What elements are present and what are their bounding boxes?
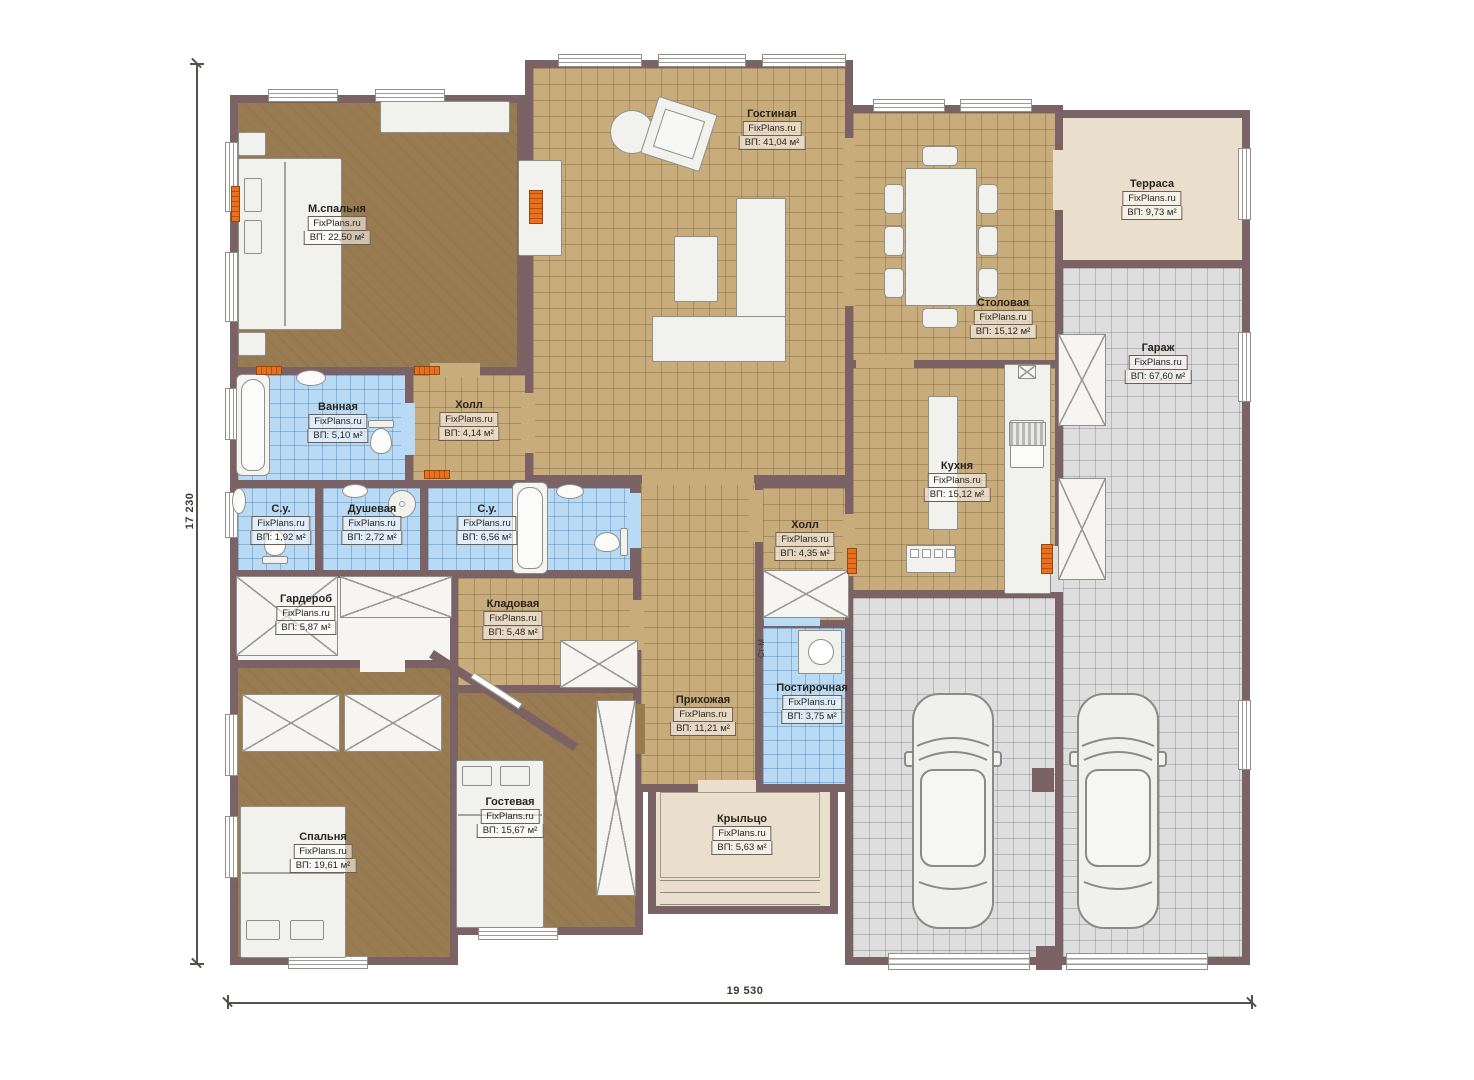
blanket-line <box>284 162 286 326</box>
dimension-width-label: 19 530 <box>700 985 790 997</box>
window <box>1238 332 1251 402</box>
room-name: Гостиная <box>747 108 797 120</box>
window <box>873 99 945 112</box>
room-label: СпальняFixPlans.ruВП: 19,61 м² <box>290 831 357 873</box>
room-label: СтоловаяFixPlans.ruВП: 15,12 м² <box>970 297 1037 339</box>
door-opening <box>401 403 415 455</box>
room-label: КладоваяFixPlans.ruВП: 5,48 м² <box>482 598 543 640</box>
burner <box>910 549 919 558</box>
room-area: ВП: 2,72 м² <box>341 531 402 545</box>
room-watermark: FixPlans.ru <box>293 844 353 859</box>
room-area: ВП: 5,63 м² <box>711 841 772 855</box>
sink <box>296 370 326 386</box>
room-name: Душевая <box>348 503 397 515</box>
room-label: ТеррасаFixPlans.ruВП: 9,73 м² <box>1121 178 1182 220</box>
room-area: ВП: 3,75 м² <box>781 710 842 724</box>
sofa <box>652 316 786 362</box>
room-name: Гараж <box>1142 342 1175 354</box>
dining-table <box>905 168 977 306</box>
room-area: ВП: 15,12 м² <box>970 325 1037 339</box>
chair <box>978 226 998 256</box>
washing-machine-label: Ст-М <box>757 639 766 658</box>
window <box>558 54 642 67</box>
room-name: Крыльцо <box>717 813 767 825</box>
room-name: С.у. <box>477 503 496 515</box>
room-name: Гардероб <box>280 593 332 605</box>
toilet <box>370 428 392 454</box>
pillow <box>500 766 530 786</box>
room-name: Постирочная <box>776 682 847 694</box>
room-label: ПостирочнаяFixPlans.ruВП: 3,75 м² <box>776 682 847 724</box>
room-label: ГостинаяFixPlans.ruВП: 41,04 м² <box>739 108 806 150</box>
room-area: ВП: 22,50 м² <box>304 231 371 245</box>
room-label: ДушеваяFixPlans.ruВП: 2,72 м² <box>341 503 402 545</box>
room-watermark: FixPlans.ru <box>782 695 842 710</box>
room-watermark: FixPlans.ru <box>742 121 802 136</box>
room-name: Ванная <box>318 401 358 413</box>
window <box>225 714 238 776</box>
room-watermark: FixPlans.ru <box>276 606 336 621</box>
room-watermark: FixPlans.ru <box>927 473 987 488</box>
room-label: ПрихожаяFixPlans.ruВП: 11,21 м² <box>670 694 736 736</box>
room-name: Кладовая <box>487 598 540 610</box>
pillar <box>1032 768 1054 792</box>
burner <box>934 549 943 558</box>
coffee-table <box>674 236 718 302</box>
room-area: ВП: 4,14 м² <box>438 427 499 441</box>
sink <box>556 484 584 499</box>
garage-cabinet <box>1058 478 1106 580</box>
toilet-tank <box>620 528 628 556</box>
window <box>1238 148 1251 220</box>
dimension-line-vertical <box>196 64 198 964</box>
armchair-seat <box>653 108 705 159</box>
fireplace-fire-icon <box>529 190 543 224</box>
toilet-tank <box>368 420 394 428</box>
pillar <box>1036 946 1062 970</box>
room-area: ВП: 15,67 м² <box>477 824 544 838</box>
room-name: Гостевая <box>485 796 534 808</box>
room-watermark: FixPlans.ru <box>308 414 368 429</box>
bathtub <box>236 374 270 476</box>
room-watermark: FixPlans.ru <box>457 516 517 531</box>
room-watermark: FixPlans.ru <box>251 516 311 531</box>
pillow <box>246 920 280 940</box>
dimension-height-label: 17 230 <box>184 481 196 541</box>
door-opening <box>642 471 754 485</box>
car-icon <box>1068 686 1168 936</box>
bedroom-closet <box>344 694 442 752</box>
room-area: ВП: 41,04 м² <box>739 136 806 150</box>
room-area: ВП: 1,92 м² <box>250 531 311 545</box>
storage-cabinet <box>560 640 638 688</box>
room-label: ГаражFixPlans.ruВП: 67,60 м² <box>1125 342 1192 384</box>
room-area: ВП: 5,10 м² <box>307 429 368 443</box>
room-watermark: FixPlans.ru <box>307 216 367 231</box>
window <box>225 816 238 878</box>
bedroom-closet <box>242 694 340 752</box>
pillow <box>290 920 324 940</box>
room-label: С.у.FixPlans.ruВП: 6,56 м² <box>456 503 517 545</box>
room-area: ВП: 19,61 м² <box>290 859 357 873</box>
nightstand <box>238 132 266 156</box>
window <box>658 54 746 67</box>
chair <box>922 308 958 328</box>
room-label: ВаннаяFixPlans.ruВП: 5,10 м² <box>307 401 368 443</box>
room-label: ХоллFixPlans.ruВП: 4,35 м² <box>774 519 835 561</box>
radiator-icon <box>1041 544 1053 574</box>
room-label: М.спальняFixPlans.ruВП: 22,50 м² <box>304 203 371 245</box>
room-name: С.у. <box>271 503 290 515</box>
chair <box>884 226 904 256</box>
room-area: ВП: 5,48 м² <box>482 626 543 640</box>
door-opening <box>627 493 641 548</box>
room-watermark: FixPlans.ru <box>673 707 733 722</box>
room-watermark: FixPlans.ru <box>1122 191 1182 206</box>
radiator-icon <box>424 470 450 479</box>
room-watermark: FixPlans.ru <box>342 516 402 531</box>
room-watermark: FixPlans.ru <box>973 310 1033 325</box>
room-watermark: FixPlans.ru <box>483 611 543 626</box>
toilet-tank <box>262 556 288 564</box>
door-opening <box>749 490 763 542</box>
pillow <box>462 766 492 786</box>
room-label: ХоллFixPlans.ruВП: 4,14 м² <box>438 399 499 441</box>
door-opening <box>1053 150 1067 210</box>
room-label: ГардеробFixPlans.ruВП: 5,87 м² <box>275 593 336 635</box>
window <box>225 252 238 322</box>
window <box>960 99 1032 112</box>
porch-step <box>660 880 820 881</box>
room-label: КухняFixPlans.ruВП: 15,12 м² <box>924 460 991 502</box>
room-name: Прихожая <box>676 694 730 706</box>
room-area: ВП: 15,12 м² <box>924 488 991 502</box>
door-opening <box>521 393 535 453</box>
window <box>762 54 846 67</box>
room-watermark: FixPlans.ru <box>775 532 835 547</box>
room-label: ГостеваяFixPlans.ruВП: 15,67 м² <box>477 796 544 838</box>
dishwasher <box>1009 422 1046 446</box>
pillow <box>244 178 262 212</box>
sink <box>342 484 368 498</box>
dresser <box>380 101 510 133</box>
room-name: Кухня <box>941 460 973 472</box>
room-watermark: FixPlans.ru <box>439 412 499 427</box>
room-label: С.у.FixPlans.ruВП: 1,92 м² <box>250 503 311 545</box>
garage-door <box>888 953 1030 970</box>
radiator-icon <box>256 366 282 375</box>
radiator-icon <box>414 366 440 375</box>
room-name: Терраса <box>1130 178 1174 190</box>
door-opening <box>856 354 914 368</box>
room-label: КрыльцоFixPlans.ruВП: 5,63 м² <box>711 813 772 855</box>
wardrobe-cabinet <box>340 576 452 618</box>
pillow <box>244 220 262 254</box>
garage-cabinet <box>1058 334 1106 426</box>
chair <box>884 184 904 214</box>
door-opening <box>843 138 855 306</box>
radiator-icon <box>847 548 857 574</box>
chair <box>978 268 998 298</box>
chair <box>922 146 958 166</box>
room-name: Холл <box>455 399 483 411</box>
burner <box>922 549 931 558</box>
guest-closet <box>596 700 636 896</box>
floor-plan: Ст-М 17 230 19 530 ГостинаяFixPlans.ruВП… <box>0 0 1474 1080</box>
window <box>268 89 338 102</box>
garage-door <box>1066 953 1208 970</box>
room-watermark: FixPlans.ru <box>712 826 772 841</box>
room-name: Столовая <box>977 297 1029 309</box>
car-icon <box>903 686 1003 936</box>
hob-icon <box>1018 365 1036 379</box>
room-area: ВП: 4,35 м² <box>774 547 835 561</box>
room-area: ВП: 11,21 м² <box>670 722 736 736</box>
chair <box>978 184 998 214</box>
chair <box>884 268 904 298</box>
window <box>478 927 558 940</box>
room-area: ВП: 6,56 м² <box>456 531 517 545</box>
room-area: ВП: 9,73 м² <box>1121 206 1182 220</box>
room-name: Холл <box>791 519 819 531</box>
nightstand <box>238 332 266 356</box>
room-watermark: FixPlans.ru <box>1128 355 1188 370</box>
porch-step <box>660 904 820 905</box>
porch-step <box>660 892 820 893</box>
window <box>1238 700 1251 770</box>
room-name: М.спальня <box>308 203 366 215</box>
room-area: ВП: 5,87 м² <box>275 621 336 635</box>
door-opening <box>360 658 405 672</box>
hall-cabinet <box>763 570 849 618</box>
dimension-line-horizontal <box>228 1002 1252 1004</box>
burner <box>946 549 955 558</box>
room-entry-hall-floor <box>633 475 763 792</box>
toilet <box>594 532 620 552</box>
radiator-icon <box>231 186 240 222</box>
sink <box>232 488 246 514</box>
room-watermark: FixPlans.ru <box>480 809 540 824</box>
washing-machine-door <box>808 639 834 665</box>
room-area: ВП: 67,60 м² <box>1125 370 1192 384</box>
room-name: Спальня <box>299 831 347 843</box>
